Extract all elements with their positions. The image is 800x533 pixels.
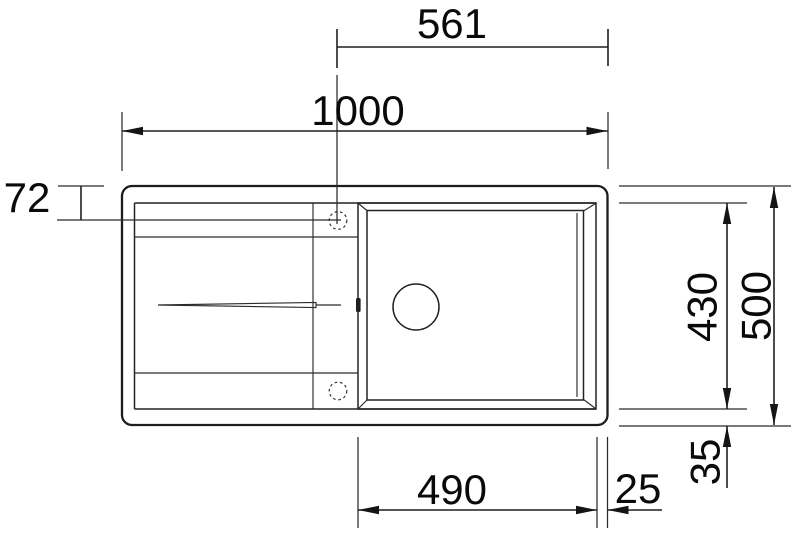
bowl-bevel-bottom-left xyxy=(359,400,368,409)
drain-hole xyxy=(393,284,439,330)
dim-490-arrow-left xyxy=(358,506,379,514)
bowl-rim-inner xyxy=(367,211,584,401)
drainboard-groove xyxy=(158,302,316,307)
bowl-bevel-bottom-right xyxy=(584,400,596,409)
dim-430-arrow-up xyxy=(723,203,731,224)
dim-500-arrow-up xyxy=(770,187,778,208)
dimension-35: 35 xyxy=(682,426,732,488)
dimension-490: 490 xyxy=(358,466,597,514)
dim-500-label: 500 xyxy=(733,271,780,341)
tap-hole-bottom xyxy=(329,382,347,400)
dimension-72: 72 xyxy=(4,174,341,221)
dim-430-label: 430 xyxy=(679,272,726,342)
dim-490-arrow-right xyxy=(576,506,597,514)
dimension-500: 500 xyxy=(733,187,780,425)
bowl xyxy=(358,203,596,409)
bowl-bevel-top-right xyxy=(584,204,596,212)
sink-body xyxy=(122,186,608,425)
dimension-430: 430 xyxy=(679,203,732,409)
dimension-25: 25 xyxy=(608,465,663,514)
dim-500-arrow-down xyxy=(770,404,778,425)
dim-430-arrow-down xyxy=(723,388,731,409)
dim-72-label: 72 xyxy=(4,174,51,221)
bowl-bevel-top-left xyxy=(359,204,368,212)
dim-35-label: 35 xyxy=(682,439,729,486)
dim-25-label: 25 xyxy=(615,465,662,512)
dim-1000-arrow-left xyxy=(122,127,143,135)
dim-1000-label: 1000 xyxy=(311,87,404,134)
dim-561-label: 561 xyxy=(417,0,487,47)
drawing-canvas: 561 1000 72 430 500 xyxy=(0,0,800,533)
dim-490-label: 490 xyxy=(417,466,487,513)
dimension-1000: 1000 xyxy=(122,87,608,171)
sink-technical-drawing: 561 1000 72 430 500 xyxy=(0,0,800,533)
dim-1000-arrow-right xyxy=(587,127,608,135)
